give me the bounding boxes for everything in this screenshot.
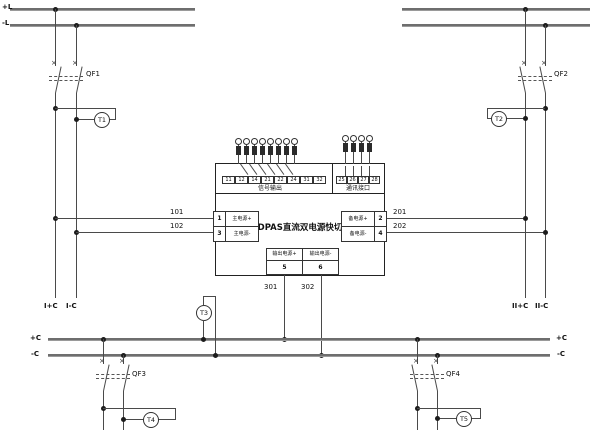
comm-lead: [369, 166, 370, 176]
breaker-terminal-x: ×: [99, 358, 105, 365]
junction-dot: [74, 117, 79, 122]
wire-302: [321, 275, 322, 355]
schematic-canvas: +L -L × × QF1 T1 × × QF2 T2 101 102: [0, 0, 600, 430]
backup-input-terminal-label: 备电源+: [341, 211, 375, 227]
breaker-label-qf4: QF4: [446, 371, 460, 378]
wire: [437, 391, 438, 430]
module-strip-bottom: [215, 193, 385, 194]
breaker-linkage: [410, 374, 444, 375]
bus-top-left-pos: [10, 8, 195, 11]
wire-101: [55, 218, 213, 219]
signal-stub-label: [244, 146, 249, 155]
wire: [203, 296, 204, 305]
junction-dot: [213, 353, 218, 358]
meter-t4: T4: [143, 412, 159, 428]
wire: [525, 9, 526, 66]
main-input-terminal-label: 主电源+: [225, 211, 259, 227]
comm-stub-circle: [342, 135, 349, 142]
wire: [123, 419, 143, 420]
comm-terminal-cell: 28: [369, 176, 380, 184]
signal-section-label: 信号输出: [258, 186, 282, 192]
signal-stub-label: [292, 146, 297, 155]
breaker-label-qf3: QF3: [132, 371, 146, 378]
bus-label-neg-C-right: -C: [557, 351, 565, 358]
signal-stub-circle: [235, 138, 242, 145]
wire: [525, 93, 526, 298]
breaker-terminal-x: ×: [51, 60, 57, 67]
backup-input-terminal-label: 备电源-: [341, 226, 375, 242]
signal-stub-circle: [243, 138, 250, 145]
wire: [55, 9, 56, 66]
signal-stub-label: [284, 146, 289, 155]
signal-stub-label: [260, 146, 265, 155]
comm-stub-label: [351, 143, 356, 152]
breaker-linkage: [96, 374, 130, 375]
comm-lead: [361, 166, 362, 176]
tail-label-sec1-pos: I+C: [44, 303, 58, 310]
signal-stub-label: [268, 146, 273, 155]
signal-stub-circle: [251, 138, 258, 145]
breaker-terminal-x: ×: [433, 358, 439, 365]
wire-301: [284, 275, 285, 339]
signal-terminal-cell: 32: [313, 176, 326, 184]
signal-stub-circle: [267, 138, 274, 145]
wire: [123, 391, 124, 430]
main-input-terminal-label: 主电源-: [225, 226, 259, 242]
breaker-linkage: [49, 76, 83, 77]
wire-label-102: 102: [170, 223, 183, 230]
output-terminal-num: 6: [302, 260, 339, 275]
comm-stub-circle: [350, 135, 357, 142]
tail-label-sec2-neg: II-C: [535, 303, 548, 310]
module-title: DPAS直流双电源快切: [250, 221, 350, 233]
wire-label-302: 302: [301, 284, 314, 291]
comm-stub-label: [343, 143, 348, 152]
module-section-divider: [332, 163, 333, 193]
signal-stub-circle: [259, 138, 266, 145]
wire: [215, 296, 216, 355]
bus-label-neg-C-left: -C: [31, 351, 39, 358]
meter-t3: T3: [196, 305, 212, 321]
breaker-linkage: [49, 80, 83, 81]
wire: [103, 408, 175, 409]
comm-terminal-cell: 27: [358, 176, 369, 184]
junction-dot: [543, 230, 548, 235]
bus-label-pos-C-right: +C: [556, 335, 567, 342]
comm-lead: [353, 166, 354, 176]
breaker-terminal-x: ×: [541, 60, 547, 67]
breaker-linkage: [410, 378, 444, 379]
comm-stub-label: [359, 143, 364, 152]
signal-terminal-cell: 12: [235, 176, 248, 184]
meter-t5: T5: [456, 411, 472, 427]
breaker-label-qf2: QF2: [554, 71, 568, 78]
signal-stub-label: [252, 146, 257, 155]
output-terminal-num: 5: [266, 260, 303, 275]
tail-label-sec1-neg: I-C: [66, 303, 77, 310]
breaker-terminal-x: ×: [119, 358, 125, 365]
wire: [76, 93, 77, 298]
wire: [505, 118, 525, 119]
breaker-linkage: [518, 76, 552, 77]
bus-label-pos-C-left: +C: [30, 335, 41, 342]
wire: [55, 93, 56, 298]
comm-terminal-cell: 26: [347, 176, 358, 184]
wire: [175, 408, 176, 420]
tail-label-sec2-pos: II+C: [512, 303, 528, 310]
signal-terminal-cell: 14: [248, 176, 261, 184]
wire-label-201: 201: [393, 209, 406, 216]
junction-dot: [435, 416, 440, 421]
signal-terminal-cell: 24: [287, 176, 300, 184]
signal-stub-circle: [291, 138, 298, 145]
comm-stub-circle: [358, 135, 365, 142]
bus-label-neg-L: -L: [2, 20, 9, 27]
wire: [157, 419, 175, 420]
wire: [417, 408, 480, 409]
bus-label-pos-L: +L: [2, 4, 12, 11]
backup-input-terminal-num: 4: [374, 226, 387, 242]
comm-lead: [345, 166, 346, 176]
breaker-label-qf1: QF1: [86, 71, 100, 78]
wire-label-202: 202: [393, 223, 406, 230]
wire-202: [387, 232, 545, 233]
signal-stub-circle: [283, 138, 290, 145]
wire: [480, 408, 481, 419]
signal-terminal-cell: 31: [300, 176, 313, 184]
signal-stub-label: [276, 146, 281, 155]
signal-terminal-cell: 22: [274, 176, 287, 184]
breaker-terminal-x: ×: [413, 358, 419, 365]
wire-label-301: 301: [264, 284, 277, 291]
comm-stub-circle: [366, 135, 373, 142]
junction-dot: [523, 116, 528, 121]
signal-stub-label: [236, 146, 241, 155]
junction-dot: [523, 216, 528, 221]
bus-ctrl-pos: [48, 338, 550, 341]
backup-input-terminal-num: 2: [374, 211, 387, 227]
signal-terminal-cell: 21: [261, 176, 274, 184]
junction-dot: [201, 337, 206, 342]
meter-t2: T2: [491, 111, 507, 127]
bus-top-right-pos: [402, 8, 590, 11]
wire: [545, 93, 546, 298]
breaker-terminal-x: ×: [521, 60, 527, 67]
comm-terminal-cell: 25: [336, 176, 347, 184]
signal-terminal-cell: 11: [222, 176, 235, 184]
comm-section-label: 通讯接口: [346, 186, 370, 192]
meter-t1: T1: [94, 112, 110, 128]
signal-stub-circle: [275, 138, 282, 145]
wire-201: [387, 218, 525, 219]
comm-stub-label: [367, 143, 372, 152]
wire: [487, 108, 545, 109]
breaker-terminal-x: ×: [72, 60, 78, 67]
bus-top-left-neg: [10, 24, 195, 27]
wire-102: [76, 232, 213, 233]
wire-label-101: 101: [170, 209, 183, 216]
junction-dot: [121, 417, 126, 422]
breaker-linkage: [96, 378, 130, 379]
bus-top-right-neg: [402, 24, 590, 27]
breaker-linkage: [518, 80, 552, 81]
wire: [55, 108, 115, 109]
